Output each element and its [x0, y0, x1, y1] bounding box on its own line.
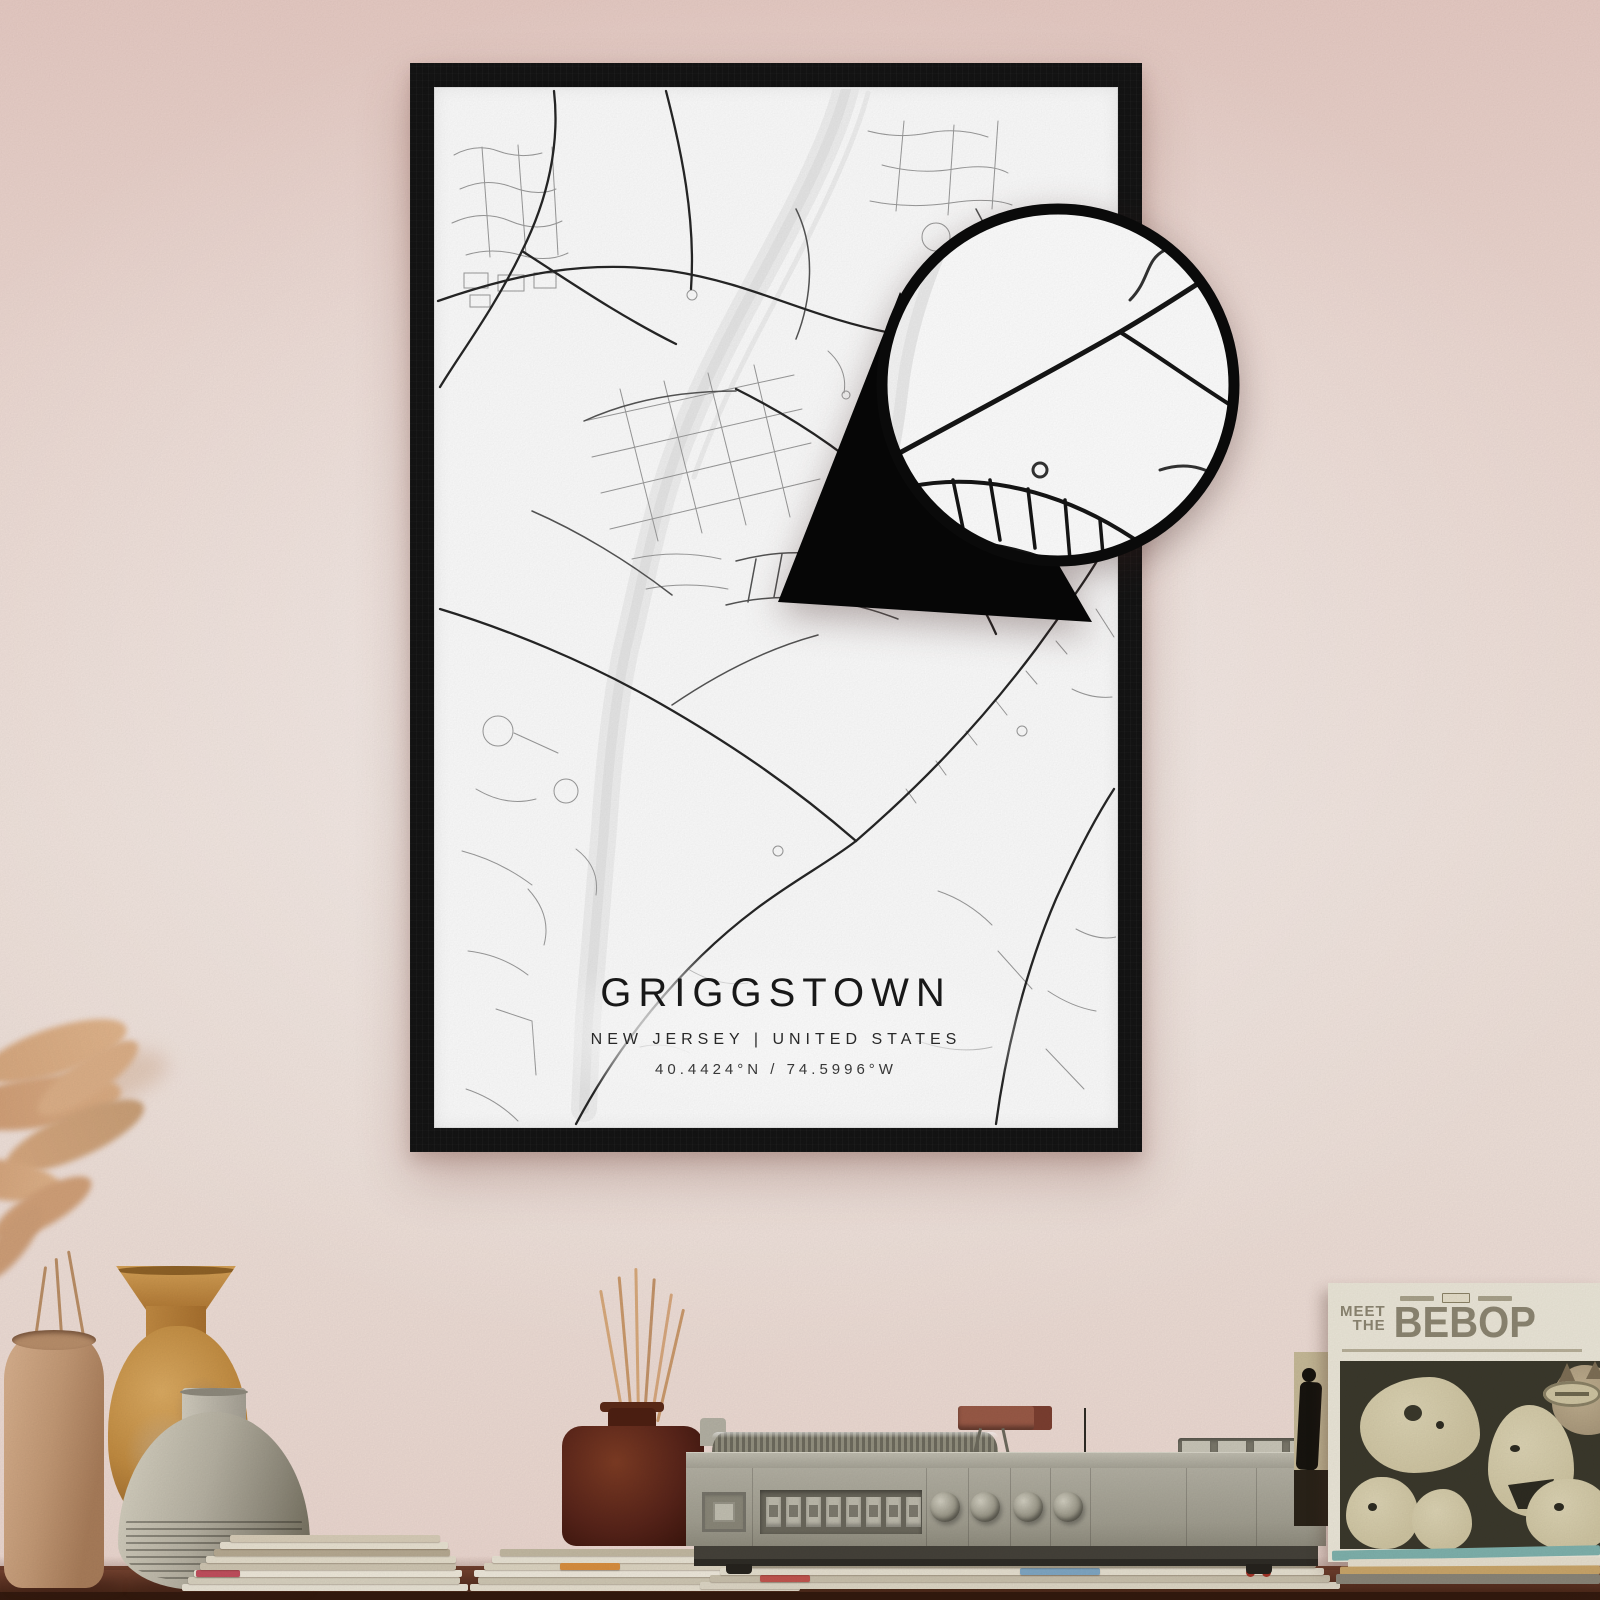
character-face: [1412, 1489, 1472, 1549]
preset-button: [906, 1497, 921, 1527]
spindle-rod: [1084, 1408, 1086, 1454]
album-cover: MEET THE BEBOP: [1328, 1283, 1600, 1562]
poster-caption: GRIGGSTOWN NEW JERSEY | UNITED STATES 40…: [434, 971, 1118, 1078]
preset-button-row: [760, 1490, 922, 1534]
volume-knob: [930, 1492, 960, 1522]
preset-button: [886, 1497, 901, 1527]
album-artwork: [1340, 1361, 1600, 1549]
tone-knob: [970, 1492, 1000, 1522]
preset-button: [766, 1497, 781, 1527]
preset-button: [826, 1497, 841, 1527]
record-player: [686, 1398, 1326, 1580]
record-sleeve-behind: [1294, 1352, 1330, 1526]
poster-title: GRIGGSTOWN: [434, 971, 1118, 1016]
album-header: MEET THE BEBOP: [1340, 1291, 1600, 1361]
room-scene: GRIGGSTOWN NEW JERSEY | UNITED STATES 40…: [0, 0, 1600, 1600]
power-button: [702, 1492, 746, 1532]
tuning-knob: [1053, 1492, 1083, 1522]
tonearm-headshell: [958, 1406, 1052, 1430]
tall-vase: [4, 1336, 104, 1588]
preset-button: [846, 1497, 861, 1527]
album-subtitle-line: [1342, 1349, 1582, 1352]
diffuser-bottle: [562, 1426, 704, 1546]
tonearm-support: [1001, 1428, 1009, 1454]
balance-knob: [1013, 1492, 1043, 1522]
front-panel: [686, 1468, 1326, 1546]
preset-button: [866, 1497, 881, 1527]
poster-sheet: GRIGGSTOWN NEW JERSEY | UNITED STATES 40…: [434, 87, 1118, 1128]
preset-button: [806, 1497, 821, 1527]
album-title-word2: THE: [1353, 1317, 1386, 1334]
deck-edge: [686, 1452, 1326, 1469]
character-face: [1360, 1377, 1480, 1473]
poster-subtitle: NEW JERSEY | UNITED STATES: [434, 1031, 1118, 1049]
album-title: MEET THE BEBOP: [1340, 1305, 1536, 1341]
preset-button: [786, 1497, 801, 1527]
album-title-word3: BEBOP: [1394, 1304, 1536, 1343]
poster-frame: GRIGGSTOWN NEW JERSEY | UNITED STATES 40…: [410, 63, 1142, 1152]
foot: [1246, 1564, 1272, 1574]
record-label-badge: [1543, 1381, 1600, 1407]
canal: [584, 89, 868, 1109]
character-face: [1526, 1479, 1600, 1549]
plinth: [694, 1546, 1318, 1566]
character-face: [1346, 1477, 1418, 1549]
poster-coordinates: 40.4424°N / 74.5996°W: [434, 1061, 1118, 1078]
foot: [726, 1564, 752, 1574]
